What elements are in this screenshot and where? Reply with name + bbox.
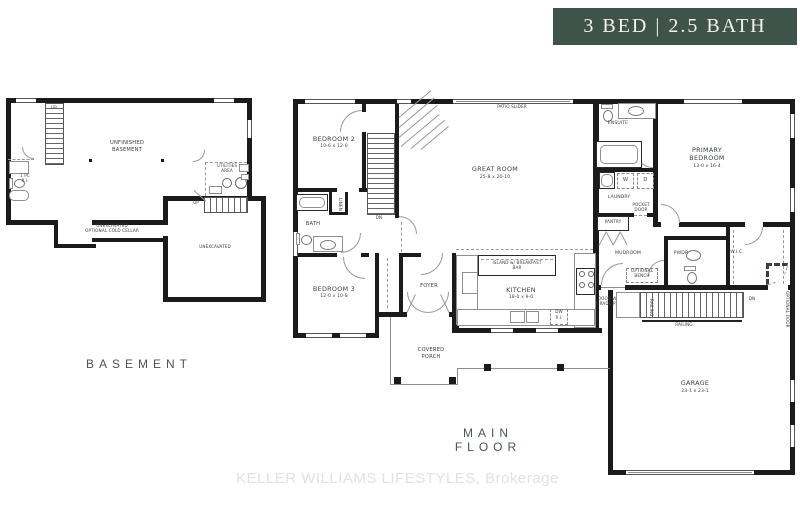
bed-bath-banner: 3 BED | 2.5 BATH xyxy=(553,8,797,45)
wall xyxy=(54,244,96,248)
wall xyxy=(664,240,668,290)
wall xyxy=(608,290,613,475)
bedroom2-dims: 10-6 x 12-0 xyxy=(304,144,364,149)
basement-title: BASEMENT xyxy=(86,357,178,371)
window xyxy=(790,425,795,447)
window xyxy=(214,98,234,103)
porch-post xyxy=(484,364,491,371)
patio-slider-label: PATIO SLIDER xyxy=(482,105,542,110)
wall xyxy=(647,213,653,217)
door-swing-arc xyxy=(661,204,680,223)
electrical-panel xyxy=(239,164,249,172)
railing-label: RAILING xyxy=(664,323,704,328)
kitchen-label: KITCHEN xyxy=(492,287,550,294)
porch-post xyxy=(449,377,456,384)
garage-stairs-down xyxy=(640,292,744,318)
patio-slider-track xyxy=(456,101,570,102)
window xyxy=(306,333,332,338)
wall xyxy=(395,104,399,218)
porch-edge xyxy=(457,368,610,369)
window xyxy=(305,99,355,104)
stairs-up-label: UP xyxy=(189,201,203,206)
porch-edge xyxy=(457,369,458,385)
toilet-tank xyxy=(9,178,13,189)
column-marker xyxy=(89,159,92,162)
wall xyxy=(6,220,58,225)
toilet-tank xyxy=(601,104,613,109)
door-swing-arc xyxy=(421,253,443,275)
wall xyxy=(261,196,266,302)
pantry-label: PANTRY xyxy=(597,220,629,225)
wall xyxy=(163,297,266,302)
bedroom3-label: BEDROOM 3 xyxy=(303,286,365,293)
wall xyxy=(293,99,298,338)
bedroom3-dims: 12-0 x 10-8 xyxy=(303,294,365,299)
bedroom2-label: BEDROOM 2 xyxy=(304,136,364,143)
banner-text: 3 BED | 2.5 BATH xyxy=(583,15,766,38)
porch-post xyxy=(394,377,401,384)
wall xyxy=(293,253,337,257)
window xyxy=(790,380,795,402)
window xyxy=(684,99,742,104)
wall xyxy=(362,104,366,112)
hatch-line xyxy=(421,126,449,150)
toilet-tank xyxy=(684,266,696,271)
window xyxy=(790,114,795,138)
main-stairs-down xyxy=(367,133,395,215)
wall xyxy=(726,227,730,290)
railing-label-vertical: RAILING xyxy=(646,293,653,323)
door-swing-arc xyxy=(745,227,763,245)
wall xyxy=(679,222,745,227)
garage-stairs-dn-label: DN xyxy=(745,297,759,302)
wall xyxy=(455,328,602,333)
pantry-door xyxy=(620,231,628,245)
partition-dashed xyxy=(8,159,34,160)
unexcavated-label: UNEXCAVATED xyxy=(179,245,251,250)
wall xyxy=(790,104,795,475)
kitchen-dims: 18-0 x 9-0 xyxy=(492,295,550,300)
window xyxy=(536,328,558,333)
linen-label: LINEN xyxy=(334,194,342,214)
burner xyxy=(579,271,585,277)
wall xyxy=(664,236,730,240)
pocket-door-line xyxy=(634,215,647,216)
pwdr-label: PWDR xyxy=(668,251,694,256)
window xyxy=(247,120,252,138)
grade-door-line xyxy=(601,287,625,288)
wall xyxy=(399,253,421,257)
pocket-door-label: DOOR xyxy=(628,208,654,213)
door-swing-arc xyxy=(428,292,449,313)
kitchen-sink xyxy=(526,311,539,323)
water-heater xyxy=(222,178,232,188)
door-swing-arc xyxy=(601,263,623,285)
door-swing-arc xyxy=(341,233,361,253)
porch-post xyxy=(557,364,564,371)
furnace xyxy=(209,186,222,194)
window xyxy=(16,98,36,103)
toilet-bowl xyxy=(301,235,312,245)
wall xyxy=(375,312,407,317)
optional-bench-label: BENCH xyxy=(626,274,658,279)
island-label: BAR xyxy=(480,266,554,271)
electrical-panel xyxy=(241,174,249,180)
garage-door-line xyxy=(628,472,752,473)
cold-cellar-label: OPTIONAL COLD CELLAR xyxy=(76,229,148,234)
wall xyxy=(163,201,168,222)
ceiling-line xyxy=(456,249,593,250)
wall xyxy=(754,470,795,475)
ceiling-line xyxy=(401,222,402,252)
brokerage-watermark: KELLER WILLIAMS LIFESTYLES, Brokerage xyxy=(236,470,576,487)
stair-landing xyxy=(616,292,640,318)
foyer-label: FOYER xyxy=(410,284,448,290)
wall xyxy=(163,236,168,302)
window xyxy=(397,99,411,104)
closet-rod xyxy=(387,258,388,308)
burner xyxy=(588,282,594,288)
window xyxy=(340,333,366,338)
sink xyxy=(628,106,644,116)
ensuite-label: ENSUITE xyxy=(598,121,638,126)
bathtub-basin xyxy=(600,145,638,164)
door-swing-arc xyxy=(340,110,362,132)
toilet-bowl xyxy=(687,272,697,284)
burner xyxy=(579,282,585,288)
wic-shelving xyxy=(733,230,734,284)
covered-porch-label: PORCH xyxy=(409,355,453,361)
great-room-dims: 25-8 x 20-10 xyxy=(458,175,532,180)
toilet-tank xyxy=(296,233,300,245)
wall xyxy=(399,253,403,312)
sink xyxy=(320,240,336,250)
covered-porch-label: COVERED xyxy=(409,348,453,354)
fridge xyxy=(462,272,478,294)
wic-label: W.I.C. xyxy=(723,250,751,255)
door-swing-arc xyxy=(22,147,34,159)
door-swing-arc xyxy=(343,257,365,279)
main-floor-title: MAIN FLOOR xyxy=(436,426,540,454)
optional-door-arc xyxy=(766,263,788,285)
laundry-tub xyxy=(9,190,29,201)
door-swing-arc xyxy=(193,150,205,162)
unfinished-basement-label: UNFINISHED xyxy=(94,141,160,147)
laundry-sink-basin xyxy=(601,174,613,187)
window xyxy=(790,188,795,212)
primary-bedroom-dims: 13-0 x 16-4 xyxy=(678,164,736,169)
unfinished-basement-label: BASEMENT xyxy=(94,148,160,154)
dw-label: DW xyxy=(551,310,567,315)
wall xyxy=(625,285,768,290)
garage-label: GARAGE xyxy=(664,380,726,387)
laundry-label: LAUNDRY xyxy=(600,195,638,200)
basement-stairs-up-right xyxy=(204,197,248,213)
column-marker xyxy=(161,159,164,162)
bath-label: BATH xyxy=(298,222,328,228)
primary-bedroom-label: BEDROOM xyxy=(678,155,736,162)
garage-dims: 23-1 x 23-1 xyxy=(664,389,726,394)
porch-edge xyxy=(390,384,458,385)
porch-edge xyxy=(390,317,391,385)
washer-label: W xyxy=(617,178,634,184)
dw-label: R.I. xyxy=(551,316,567,321)
pantry-door xyxy=(613,232,621,246)
wall xyxy=(375,253,379,338)
great-room-label: GREAT ROOM xyxy=(458,166,532,173)
burner xyxy=(588,271,594,277)
floor-plan-image: 3 BED | 2.5 BATH UP UP 1 PC R.I. UTILITI… xyxy=(0,0,800,510)
optional-door-label: OPTIONAL DOOR xyxy=(782,290,789,328)
pantry-door xyxy=(599,232,607,246)
wall xyxy=(608,470,626,475)
one-pc-label: R.I. xyxy=(17,179,33,184)
window xyxy=(491,328,513,333)
stairs-up-label: UP xyxy=(46,106,62,111)
basement-stairs-up xyxy=(45,103,64,165)
stairs-dn-label: DN xyxy=(368,216,390,221)
kitchen-sink xyxy=(510,311,525,323)
wall xyxy=(92,238,167,242)
mudroom-label: MUDROOM xyxy=(607,251,649,256)
bathtub-basin xyxy=(299,197,325,208)
dryer-label: D xyxy=(637,178,654,184)
wall xyxy=(247,98,252,201)
